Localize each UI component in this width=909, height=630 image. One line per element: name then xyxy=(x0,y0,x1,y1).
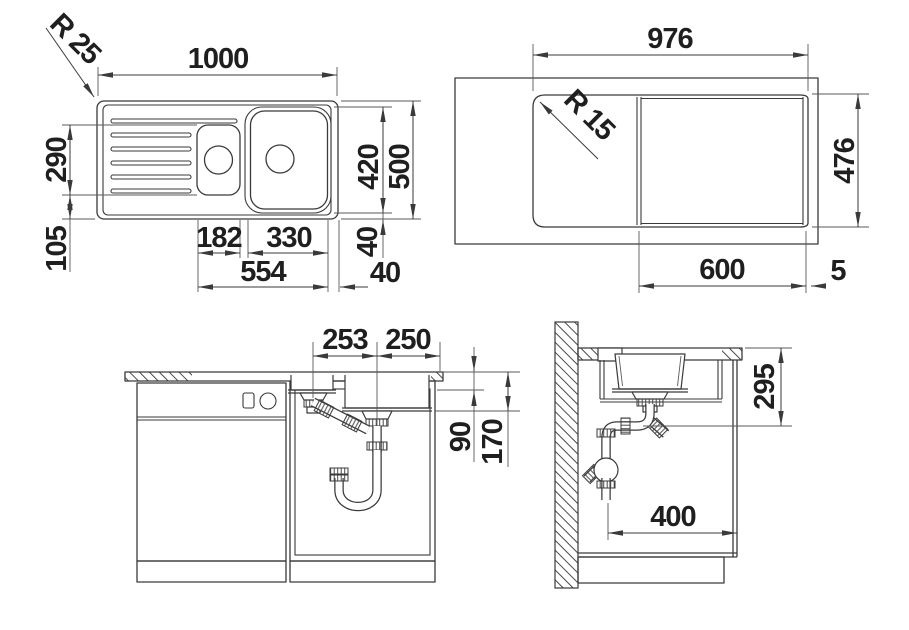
small-bowl-strainer xyxy=(300,393,327,400)
dim-edge-lip: 5 xyxy=(811,255,846,287)
dim-label-overall-depth: 500 xyxy=(384,144,416,189)
dim-label-cutout-width: 976 xyxy=(647,23,693,55)
dim-label-small-drain-offset: 253 xyxy=(322,324,368,356)
dim-label-edge-lip: 5 xyxy=(830,255,846,287)
control-button xyxy=(243,393,254,408)
dim-bowl-zone-width: 600 xyxy=(639,231,806,293)
drainboard-ridges xyxy=(111,119,237,193)
wall-section xyxy=(555,322,578,588)
dim-cutout-width: 976 xyxy=(533,23,808,91)
dim-label-main-drain-offset: 250 xyxy=(385,324,430,356)
drain-flange-side xyxy=(632,392,668,399)
sink-inner-contour xyxy=(103,105,331,215)
sink-dimension-drawing: 1000 R 25 290 105 420 500 xyxy=(0,0,909,630)
dim-label-cutout-radius: R 15 xyxy=(557,83,621,147)
dim-bottom-offset: 105 xyxy=(41,195,95,272)
dim-label-overall-width: 1000 xyxy=(188,43,249,75)
cabinet-door xyxy=(295,389,430,555)
bowl-side-section xyxy=(615,354,685,389)
dim-label-bottom-offset: 105 xyxy=(41,225,73,271)
dim-small-bowl-drain-offset: 253 xyxy=(313,324,377,356)
dim-label-bowl-zone-width: 600 xyxy=(699,254,744,286)
dim-label-small-bowl-depth: 90 xyxy=(445,422,477,452)
waste-pipes-side xyxy=(582,404,667,501)
control-knob xyxy=(260,393,276,409)
plinth-side xyxy=(578,557,724,583)
small-bowl-drain xyxy=(205,146,233,174)
dim-bowls-span: 554 xyxy=(198,256,328,288)
dim-overall-width: 1000 xyxy=(98,43,337,96)
main-bowl-section xyxy=(345,375,429,408)
dim-main-bowl-drain-offset: 250 xyxy=(377,324,440,356)
small-bowl-section xyxy=(291,375,333,390)
technical-drawing-sheet: 1000 R 25 290 105 420 500 xyxy=(0,0,909,630)
dim-label-bowls-span: 554 xyxy=(240,256,286,288)
main-bowl xyxy=(251,111,328,209)
dim-small-bowl-width: 182 xyxy=(196,220,241,292)
dim-label-trap-wall-offset: 400 xyxy=(650,501,695,533)
sink-side-section-view: 295 400 xyxy=(555,322,792,588)
sink-top-view: 1000 R 25 290 105 420 500 xyxy=(41,7,421,292)
bowl-zone-lines xyxy=(637,97,803,225)
plinth-right xyxy=(290,561,435,582)
dim-label-bowl-zone-height: 420 xyxy=(353,144,385,189)
dim-label-main-bowl-depth: 170 xyxy=(477,419,509,464)
dim-label-drain-height: 295 xyxy=(749,363,781,409)
dishwasher-cabinet xyxy=(137,383,286,561)
dim-bowl-length: 290 xyxy=(41,125,197,195)
sink-cutout-view: 976 R 15 476 600 5 xyxy=(455,23,869,293)
dim-bottom-gap: 40 xyxy=(352,213,384,258)
plinth-left xyxy=(137,561,286,582)
dim-label-cutout-depth: 476 xyxy=(829,137,861,183)
dim-label-bowl-length: 290 xyxy=(41,137,73,182)
dim-label-right-gap: 40 xyxy=(370,257,400,289)
main-bowl-rim xyxy=(245,107,331,213)
dim-cutout-depth: 476 xyxy=(812,94,869,227)
dim-label-bottom-gap: 40 xyxy=(352,227,384,257)
dim-trap-wall-offset: 400 xyxy=(608,501,737,540)
sink-front-section-view: 253 250 90 170 xyxy=(125,324,520,582)
sink-shell-side xyxy=(600,354,722,412)
small-bowl xyxy=(197,125,240,195)
dim-label-main-bowl-width: 330 xyxy=(266,222,311,254)
main-bowl-drain xyxy=(266,145,294,173)
dim-label-small-bowl-width: 182 xyxy=(196,222,241,254)
dim-label-corner-radius: R 25 xyxy=(43,7,107,71)
